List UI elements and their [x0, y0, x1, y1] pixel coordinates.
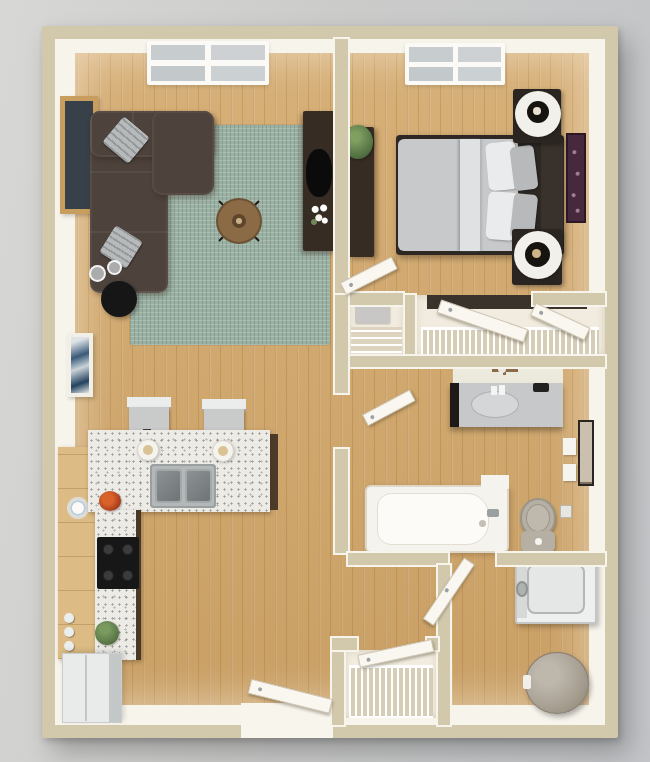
- bed-sheet-fold: [460, 139, 480, 251]
- throw-pillow-lower: [99, 225, 143, 269]
- basket-label: [523, 675, 531, 689]
- wall-art-large: [60, 96, 98, 214]
- flower-vase: [308, 201, 332, 229]
- coffee-table: [211, 193, 267, 249]
- bathtub-deck: [481, 475, 509, 489]
- bed-pillow-white: [485, 191, 518, 241]
- pantry-cabinet: [58, 447, 95, 659]
- washer-lid: [527, 564, 585, 614]
- laundry-room: [55, 39, 605, 725]
- apartment-floor-plan: [42, 26, 618, 738]
- wall-entry-closet-north-left: [332, 638, 357, 650]
- double-sink: [150, 464, 216, 508]
- bathtub: [365, 485, 509, 553]
- closet-bifold-door: [437, 299, 529, 342]
- pendant-light-bulb: [143, 445, 153, 455]
- pendant-light: [137, 439, 159, 461]
- window-pane: [211, 66, 265, 81]
- bedroom: [55, 39, 605, 725]
- kitchen-counter: [95, 510, 141, 660]
- window-pane: [458, 47, 502, 62]
- pendant-light: [212, 440, 234, 462]
- bed-pillow-white: [485, 141, 519, 191]
- nightstand-upper-base: [513, 89, 561, 143]
- dresser: [348, 127, 374, 257]
- bathtub-faucet: [487, 509, 499, 517]
- entry-doorway-opening: [241, 714, 333, 738]
- lamp-glint: [533, 107, 541, 115]
- wall-art-blue: [67, 333, 93, 397]
- toilet-seat: [526, 504, 550, 532]
- vanity-back-ledge: [453, 367, 563, 384]
- tv-console: [303, 111, 336, 251]
- vanity-soap-bottle: [491, 386, 497, 395]
- headboard: [541, 137, 563, 253]
- kitchen: [55, 39, 605, 725]
- bar-stool: [202, 399, 246, 411]
- washer-door-side: [517, 560, 527, 618]
- wall-bedroom-south-right: [533, 293, 605, 305]
- wall-bedroom-south-left: [348, 293, 403, 305]
- wall-clock: [67, 497, 89, 519]
- entry: [55, 39, 605, 725]
- island-base-edge: [264, 434, 278, 510]
- bedroom-closet: [55, 39, 605, 725]
- pendant-light-bulb: [218, 446, 228, 456]
- living-room: [55, 39, 605, 725]
- drinking-glass: [89, 265, 106, 282]
- nightstand-lower-top: [514, 231, 562, 279]
- refrigerator-seam: [85, 655, 87, 721]
- bathtub-basin: [377, 493, 489, 545]
- wall-entry-closet-west: [332, 650, 344, 725]
- toilet-tank: [521, 531, 555, 552]
- kitchen-island: [88, 430, 270, 512]
- nightstand-upper-top: [515, 91, 561, 137]
- area-rug: [130, 125, 330, 345]
- window-pane: [409, 47, 453, 62]
- bar-stool: [127, 397, 171, 409]
- window-bedroom: [405, 43, 505, 85]
- window-pane: [458, 67, 502, 82]
- wall-inner-faces: [55, 39, 605, 725]
- cabinet-knob: [64, 627, 74, 637]
- entry-closet-door: [357, 639, 434, 668]
- vanity-side-panel: [450, 383, 459, 427]
- potted-plant-kitchen: [95, 621, 119, 645]
- lamp: [527, 101, 549, 123]
- cabinet-knob: [64, 655, 74, 665]
- stool-leg: [143, 429, 151, 435]
- wall-bathroom-west-upper: [335, 295, 348, 393]
- window-pane: [151, 66, 205, 81]
- bed-pillow-gray: [510, 193, 538, 239]
- throw-pillow-corner: [102, 116, 150, 164]
- vanity-soap-bottle: [499, 385, 505, 395]
- washer-porthole: [516, 581, 528, 597]
- drinking-glass: [107, 260, 122, 275]
- bathroom: [55, 39, 605, 725]
- bed-pillow-gray: [509, 145, 538, 192]
- sectional-sofa-left-arm: [90, 111, 168, 293]
- vanity-counter: [450, 383, 563, 427]
- tv: [306, 149, 332, 197]
- sectional-sofa-top-arm: [90, 111, 214, 157]
- wall-bathroom-west-lower: [335, 449, 348, 553]
- washer: [515, 558, 597, 624]
- wall-living-bedroom: [335, 39, 348, 295]
- wall-art-purple: [566, 133, 586, 223]
- toilet-paper-holder: [560, 505, 572, 518]
- nightstand-lower-base: [512, 229, 562, 285]
- stool-leg: [218, 431, 226, 437]
- entry-closet-wire-shelf: [349, 665, 433, 718]
- refrigerator: [62, 653, 122, 723]
- small-closet-wire-shelf: [351, 327, 402, 353]
- window-pane: [409, 67, 453, 82]
- bar-stool-seat: [204, 409, 244, 437]
- closet-bifold-door: [530, 303, 590, 341]
- floor-plan-render: [0, 0, 650, 762]
- vanity-sink: [471, 391, 519, 418]
- wall-closet-divider: [405, 295, 415, 356]
- towel-hook: [563, 464, 576, 481]
- toilet-flush-button: [535, 538, 542, 545]
- sectional-sofa-chaise: [152, 111, 214, 195]
- cabinet-knob: [64, 641, 74, 651]
- wall-closet-bathroom: [348, 356, 605, 367]
- lamp: [525, 242, 550, 267]
- sink-basin: [155, 469, 182, 503]
- vanity-faucet-bar: [492, 369, 518, 372]
- toilet-bowl: [520, 498, 556, 538]
- window-pane: [211, 45, 265, 60]
- lamp-glint: [532, 249, 541, 258]
- bed-frame: [396, 135, 564, 255]
- flower-pot-red: [99, 491, 121, 511]
- bathtub-drain: [479, 520, 486, 527]
- bedroom-door: [340, 256, 398, 295]
- wall-art-bathroom: [578, 420, 594, 486]
- laundry-basket: [525, 652, 589, 714]
- bar-stool-seat: [129, 407, 169, 435]
- window-living: [147, 41, 269, 85]
- towel-hook: [563, 438, 576, 455]
- vanity-tray: [533, 383, 549, 392]
- cooktop: [97, 537, 139, 589]
- side-table: [101, 281, 137, 317]
- window-pane: [151, 45, 205, 60]
- entry-door: [248, 679, 333, 714]
- bathroom-door: [362, 389, 416, 426]
- wall-bathroom-south-right: [497, 553, 605, 565]
- apartment-interior: [55, 39, 605, 725]
- cabinet-knob: [64, 613, 74, 623]
- bed-mattress: [398, 139, 518, 251]
- wall-bathroom-south-left: [348, 553, 448, 565]
- sink-basin: [185, 469, 212, 503]
